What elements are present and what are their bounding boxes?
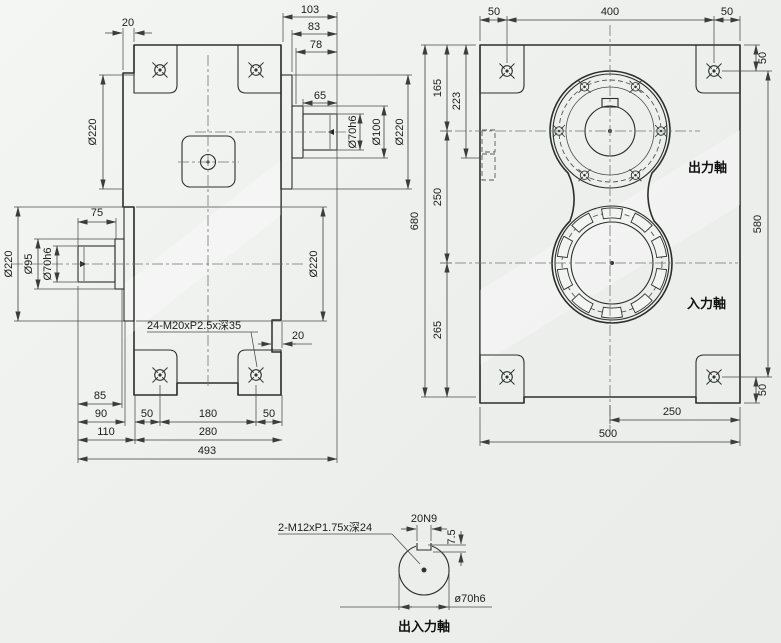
bolt-hole-icon bbox=[707, 64, 722, 79]
bolt-hole-icon bbox=[249, 368, 264, 383]
dim-label: 223 bbox=[451, 92, 463, 110]
dim-label: 400 bbox=[601, 6, 619, 18]
dim-label: 500 bbox=[599, 428, 617, 440]
shaft-detail-view: 2-M12xP1.75x深24 20N9 7.5 ø70h6 出入力軸 bbox=[278, 513, 492, 634]
bolt-hole-icon bbox=[153, 63, 168, 78]
dim-label: 680 bbox=[409, 212, 421, 230]
dim-label: 50 bbox=[721, 6, 733, 18]
thread-note: 2-M12xP1.75x深24 bbox=[278, 521, 372, 534]
dim-label: 103 bbox=[301, 4, 319, 16]
dim-label: Ø95 bbox=[23, 254, 35, 275]
detail-caption: 出入力軸 bbox=[398, 619, 450, 634]
dim-label: Ø220 bbox=[308, 251, 320, 278]
dim-label: 50 bbox=[757, 384, 769, 396]
dim-label: Ø100 bbox=[371, 119, 383, 146]
dim-label: 90 bbox=[95, 408, 107, 420]
dim-label: 50 bbox=[488, 6, 500, 18]
dim-label: 7.5 bbox=[446, 529, 458, 544]
bolt-hole-icon bbox=[707, 370, 722, 385]
bolt-hole-icon bbox=[153, 368, 168, 383]
dim-label: 75 bbox=[91, 207, 103, 219]
dim-label: 85 bbox=[94, 390, 106, 402]
dim-label: ø70h6 bbox=[454, 593, 485, 605]
dim-label: Ø220 bbox=[394, 119, 406, 146]
bolt-hole-icon bbox=[500, 370, 515, 385]
output-shaft-label: 出力軸 bbox=[688, 160, 727, 175]
side-view: 出力軸 入力軸 50 400 50 50 580 50 165 250 265 … bbox=[409, 6, 772, 446]
dim-label: Ø220 bbox=[3, 251, 15, 278]
dim-label: 83 bbox=[308, 21, 320, 33]
dim-label: Ø220 bbox=[87, 119, 99, 146]
dim-label: 493 bbox=[198, 445, 216, 457]
dim-label: 180 bbox=[199, 408, 217, 420]
front-view: 20 103 83 78 65 Ø70h6 Ø100 Ø220 Ø220 75 … bbox=[3, 4, 412, 463]
dim-label: 78 bbox=[310, 39, 322, 51]
dim-label: 50 bbox=[263, 408, 275, 420]
bolt-hole-icon bbox=[249, 63, 264, 78]
dim-label: 265 bbox=[432, 321, 444, 339]
dim-label: Ø70h6 bbox=[347, 115, 359, 148]
dim-label: 50 bbox=[141, 408, 153, 420]
dim-label: 165 bbox=[432, 79, 444, 97]
bolt-hole-icon bbox=[500, 64, 515, 79]
dim-label: Ø70h6 bbox=[42, 247, 54, 280]
dim-label: 50 bbox=[757, 52, 769, 64]
dim-label: 110 bbox=[97, 426, 115, 438]
dim-label: 280 bbox=[199, 426, 217, 438]
dim-label: 20 bbox=[292, 330, 304, 342]
dim-label: 250 bbox=[663, 406, 681, 418]
gearbox-drawing: 20 103 83 78 65 Ø70h6 Ø100 Ø220 Ø220 75 … bbox=[0, 0, 781, 643]
center-hole bbox=[422, 568, 427, 573]
dim-label: 580 bbox=[752, 215, 764, 233]
keyway-cutout bbox=[416, 542, 432, 550]
side-hidden-detail bbox=[482, 154, 495, 180]
dim-label: 20N9 bbox=[411, 513, 437, 525]
drawing-canvas: 20 103 83 78 65 Ø70h6 Ø100 Ø220 Ø220 75 … bbox=[0, 0, 781, 643]
dim-label: 65 bbox=[314, 90, 326, 102]
side-hidden-detail bbox=[482, 130, 495, 152]
input-shaft-label: 入力軸 bbox=[687, 296, 726, 311]
thread-note: 24-M20xP2.5x深35 bbox=[147, 319, 241, 332]
dim-label: 250 bbox=[432, 188, 444, 206]
dim-label: 20 bbox=[122, 17, 134, 29]
